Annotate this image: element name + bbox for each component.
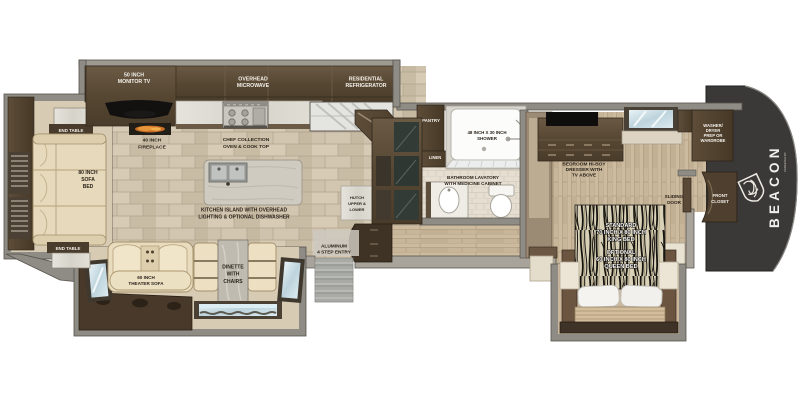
svg-text:50 INCH: 50 INCH bbox=[124, 73, 144, 79]
svg-text:DINETTE: DINETTE bbox=[222, 265, 244, 271]
svg-text:MICROWAVE: MICROWAVE bbox=[237, 83, 270, 89]
svg-text:DRESSER WITH: DRESSER WITH bbox=[566, 167, 603, 173]
svg-text:BEDROOM HI-BOY: BEDROOM HI-BOY bbox=[562, 162, 606, 168]
svg-text:END TABLE: END TABLE bbox=[59, 128, 84, 133]
svg-text:SLIDING: SLIDING bbox=[665, 194, 684, 199]
svg-text:WITH MEDICINE CABINET: WITH MEDICINE CABINET bbox=[444, 181, 501, 186]
svg-text:LOWER: LOWER bbox=[350, 207, 365, 212]
svg-text:CHAIRS: CHAIRS bbox=[223, 279, 243, 285]
svg-text:40 INCH: 40 INCH bbox=[143, 138, 162, 144]
svg-text:REFRIGERATOR: REFRIGERATOR bbox=[345, 83, 386, 89]
svg-text:OVEN & COOK TOP: OVEN & COOK TOP bbox=[223, 144, 270, 150]
svg-text:4 STEP ENTRY: 4 STEP ENTRY bbox=[317, 250, 352, 256]
svg-text:PANTRY: PANTRY bbox=[422, 118, 440, 123]
svg-text:70 INCH X 80 INCH: 70 INCH X 80 INCH bbox=[596, 230, 646, 236]
svg-text:CLOSET: CLOSET bbox=[711, 199, 729, 204]
svg-text:THEATER SOFA: THEATER SOFA bbox=[128, 281, 164, 286]
svg-text:HUTCH: HUTCH bbox=[350, 195, 364, 200]
svg-text:BATHROOM LAVATORY: BATHROOM LAVATORY bbox=[447, 175, 499, 180]
svg-text:OVERHEAD: OVERHEAD bbox=[238, 77, 268, 83]
svg-text:48 INCH X 30 INCH: 48 INCH X 30 INCH bbox=[467, 130, 506, 135]
svg-text:MONITOR TV: MONITOR TV bbox=[118, 79, 151, 85]
svg-text:LIGHTING & OPTIONAL DISHWASHER: LIGHTING & OPTIONAL DISHWASHER bbox=[198, 215, 290, 221]
svg-text:WITH: WITH bbox=[227, 272, 240, 278]
svg-text:80 INCH: 80 INCH bbox=[78, 170, 98, 176]
svg-text:UPPER &: UPPER & bbox=[348, 201, 366, 206]
svg-text:CHEF COLLECTION: CHEF COLLECTION bbox=[223, 137, 270, 143]
svg-text:SHOWER: SHOWER bbox=[477, 136, 498, 141]
svg-text:RESIDENTIAL: RESIDENTIAL bbox=[349, 77, 384, 83]
svg-text:WARDROBE: WARDROBE bbox=[701, 138, 726, 143]
svg-text:BEACON: BEACON bbox=[767, 144, 782, 228]
svg-text:KING BED: KING BED bbox=[607, 237, 634, 243]
svg-text:QUEEN BED: QUEEN BED bbox=[604, 264, 637, 270]
svg-text:DOOR: DOOR bbox=[667, 200, 681, 205]
svg-text:FIREPLACE: FIREPLACE bbox=[138, 145, 166, 151]
svg-text:END TABLE: END TABLE bbox=[56, 246, 81, 251]
svg-text:OPTIONAL: OPTIONAL bbox=[607, 250, 636, 256]
svg-text:60 INCH: 60 INCH bbox=[137, 275, 155, 280]
svg-text:LINEN: LINEN bbox=[429, 155, 442, 160]
svg-text:TV ABOVE: TV ABOVE bbox=[572, 173, 597, 179]
svg-text:60 INCH X 80 INCH: 60 INCH X 80 INCH bbox=[596, 257, 646, 263]
svg-text:SOFA: SOFA bbox=[81, 177, 95, 183]
svg-text:STANDARD: STANDARD bbox=[606, 223, 637, 229]
svg-text:BED: BED bbox=[83, 184, 94, 190]
svg-text:VANLEIGH RV: VANLEIGH RV bbox=[783, 152, 787, 172]
svg-text:ALUMINUM: ALUMINUM bbox=[321, 244, 347, 250]
svg-text:FRONT: FRONT bbox=[712, 193, 727, 198]
svg-text:KITCHEN ISLAND WITH OVERHEAD: KITCHEN ISLAND WITH OVERHEAD bbox=[201, 208, 288, 214]
